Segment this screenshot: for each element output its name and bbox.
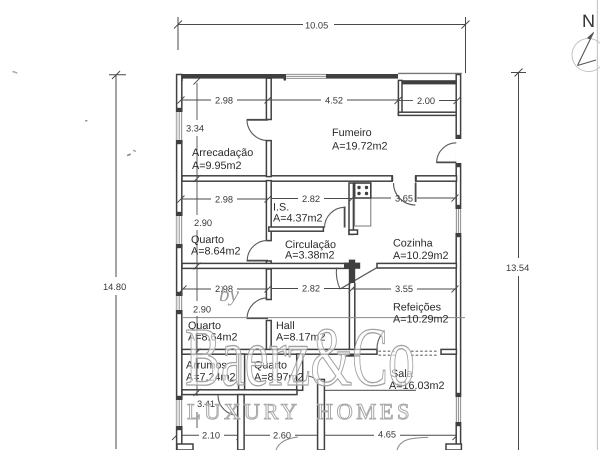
svg-text:A=10.29m2: A=10.29m2 — [393, 250, 449, 262]
svg-text:by: by — [219, 282, 240, 306]
svg-text:3.55: 3.55 — [395, 284, 413, 294]
svg-text:N: N — [582, 11, 595, 31]
svg-text:LUXURY HOMES: LUXURY HOMES — [187, 399, 413, 424]
svg-text:Baerz&Co: Baerz&Co — [185, 311, 415, 404]
svg-text:4.65: 4.65 — [378, 430, 396, 440]
svg-text:2.98: 2.98 — [215, 195, 233, 205]
svg-text:A=3.38m2: A=3.38m2 — [285, 250, 335, 262]
svg-text:A=19.72m2: A=19.72m2 — [332, 141, 388, 153]
svg-text:Cozinha: Cozinha — [393, 238, 433, 250]
svg-text:3.34: 3.34 — [186, 124, 204, 134]
svg-text:10.05: 10.05 — [305, 21, 328, 31]
svg-text:Arrecadação: Arrecadação — [192, 147, 253, 159]
svg-text:Fumeiro: Fumeiro — [332, 127, 372, 139]
svg-text:2.10: 2.10 — [202, 431, 220, 441]
svg-text:2.82: 2.82 — [302, 284, 320, 294]
svg-text:14.80: 14.80 — [103, 282, 126, 292]
svg-text:A=8.64m2: A=8.64m2 — [191, 246, 241, 258]
svg-text:2.00: 2.00 — [417, 96, 435, 106]
svg-text:Quarto: Quarto — [191, 234, 224, 246]
svg-text:A=9.95m2: A=9.95m2 — [192, 160, 242, 172]
svg-text:3.65: 3.65 — [395, 194, 413, 204]
svg-text:2.82: 2.82 — [302, 194, 320, 204]
svg-text:4.52: 4.52 — [325, 96, 343, 106]
svg-text:A=4.37m2: A=4.37m2 — [273, 213, 323, 225]
svg-text:2.90: 2.90 — [194, 218, 212, 228]
svg-text:2.98: 2.98 — [215, 96, 233, 106]
svg-text:13.54: 13.54 — [506, 263, 529, 273]
